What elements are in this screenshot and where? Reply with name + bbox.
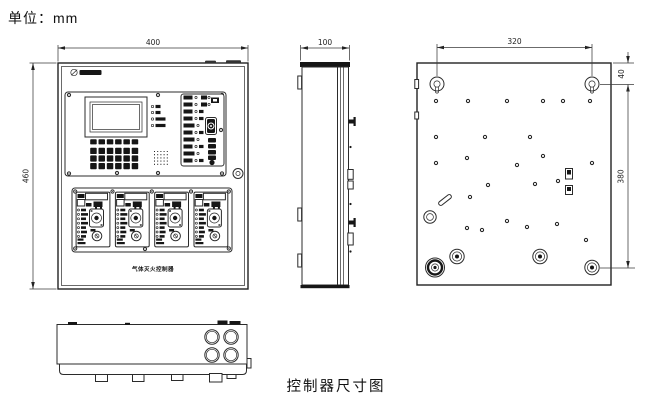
mounting-bolt (349, 218, 356, 227)
buzzer-icon (209, 160, 214, 165)
rear-bracket (348, 181, 353, 189)
screw-icon (219, 128, 222, 131)
bottom-view (57, 321, 251, 383)
upper-operation-panel (65, 92, 226, 176)
rear-bracket (348, 170, 353, 180)
cable-knockout (585, 260, 599, 274)
function-key (208, 144, 216, 149)
cable-knockout (426, 258, 445, 277)
lower-zone-panel (72, 188, 232, 252)
cable-grommet (424, 211, 436, 223)
zone-module-2 (115, 192, 149, 247)
side-view (298, 62, 356, 288)
screw-icon (115, 171, 118, 174)
mounting-foot (210, 374, 223, 383)
screw-icon (74, 247, 77, 250)
dim-value-320: 320 (507, 37, 522, 46)
terminal-fixture (566, 186, 573, 195)
zone-module-1 (76, 192, 110, 247)
rear-bracket (348, 233, 353, 245)
mounting-foot (96, 375, 108, 382)
screw-icon (156, 171, 159, 174)
hinge-knuckle (230, 321, 241, 324)
mounting-foot (172, 375, 184, 381)
indicator-subpanel (181, 94, 224, 166)
function-key (208, 138, 216, 143)
screw-icon (67, 93, 70, 96)
mounting-foot (133, 375, 145, 382)
function-key (208, 150, 216, 155)
program-connector (206, 118, 217, 135)
top-hinge-knuckle (205, 61, 216, 64)
dimension-front-width: 400 (58, 38, 248, 62)
controller-dimension-drawing: 单位：mm 控制器尺寸图 (0, 0, 659, 415)
screw-icon (189, 190, 192, 193)
screw-icon (220, 172, 223, 175)
terminal-fixture (566, 169, 573, 180)
dim-value-400: 400 (146, 38, 161, 47)
screw-icon (156, 93, 159, 96)
cable-knockout (533, 249, 547, 263)
hinge-knuckle (125, 323, 130, 325)
door-hinge (298, 208, 302, 221)
side-bracket-edge (415, 80, 419, 89)
side-bottom-band (301, 285, 350, 288)
dim-value-40: 40 (617, 69, 626, 79)
device-label: 气体灭火控制器 (131, 265, 174, 273)
dim-value-380: 380 (617, 169, 626, 184)
door-hinge (298, 76, 302, 89)
dim-value-460: 460 (22, 169, 31, 184)
hinge-knuckle (68, 322, 77, 325)
screw-icon (111, 190, 114, 193)
screw-icon (150, 190, 153, 193)
dimension-side-depth: 100 (301, 38, 350, 61)
mounting-bolt (349, 117, 356, 126)
top-hinge-knuckle (226, 60, 241, 63)
drawing-caption: 控制器尺寸图 (287, 378, 386, 395)
side-back-box (338, 67, 349, 285)
screw-icon (227, 247, 230, 250)
side-top-cap (300, 62, 350, 67)
side-door-outline (302, 67, 338, 285)
screw-icon (143, 247, 146, 250)
screw-icon (67, 172, 70, 175)
zone-module-3 (155, 192, 189, 247)
unit-label: 单位：mm (8, 10, 78, 26)
function-key (208, 156, 216, 161)
drawing-canvas: 单位：mm 控制器尺寸图 (0, 0, 659, 415)
front-view: 气体灭火控制器 (58, 60, 248, 289)
cable-knockout (450, 249, 464, 263)
back-plate-outline (417, 63, 611, 285)
hinge-knuckle (218, 321, 228, 325)
lcd-screen (85, 97, 147, 137)
side-bracket-edge (415, 112, 419, 119)
door-hinge (298, 254, 302, 267)
mounting-foot (227, 375, 236, 379)
dimension-front-height: 460 (22, 63, 57, 289)
zone-module-4 (194, 192, 228, 247)
edge-tab (247, 359, 251, 369)
dim-value-100: 100 (318, 38, 333, 47)
back-view (415, 63, 611, 285)
door-bottom-lip (60, 364, 247, 375)
